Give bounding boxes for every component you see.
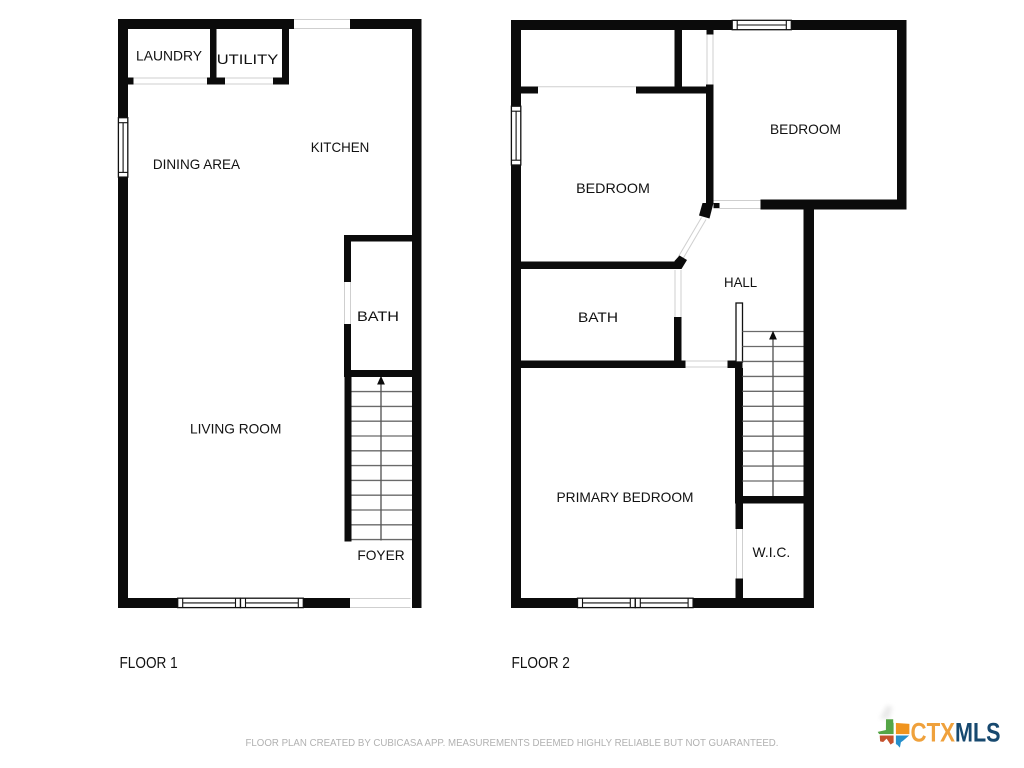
svg-text:BATH: BATH: [357, 308, 399, 324]
svg-text:FLOOR 1: FLOOR 1: [120, 655, 178, 672]
svg-text:BEDROOM: BEDROOM: [576, 180, 650, 196]
svg-text:UTILITY: UTILITY: [217, 51, 279, 67]
svg-text:DINING AREA: DINING AREA: [153, 156, 241, 172]
svg-text:FLOOR PLAN CREATED BY CUBICASA: FLOOR PLAN CREATED BY CUBICASA APP. MEAS…: [246, 737, 779, 749]
svg-text:PRIMARY BEDROOM: PRIMARY BEDROOM: [557, 489, 694, 505]
svg-text:CTX: CTX: [911, 718, 956, 748]
svg-text:W.I.C.: W.I.C.: [753, 544, 791, 560]
svg-text:BATH: BATH: [578, 309, 618, 325]
svg-text:HALL: HALL: [724, 274, 757, 290]
svg-text:FLOOR 2: FLOOR 2: [512, 655, 570, 672]
svg-text:FOYER: FOYER: [357, 547, 404, 563]
svg-text:LIVING ROOM: LIVING ROOM: [190, 421, 281, 437]
svg-text:LAUNDRY: LAUNDRY: [136, 47, 203, 63]
svg-text:KITCHEN: KITCHEN: [311, 139, 370, 155]
svg-text:MLS: MLS: [955, 718, 1001, 748]
svg-text:BEDROOM: BEDROOM: [770, 121, 841, 137]
